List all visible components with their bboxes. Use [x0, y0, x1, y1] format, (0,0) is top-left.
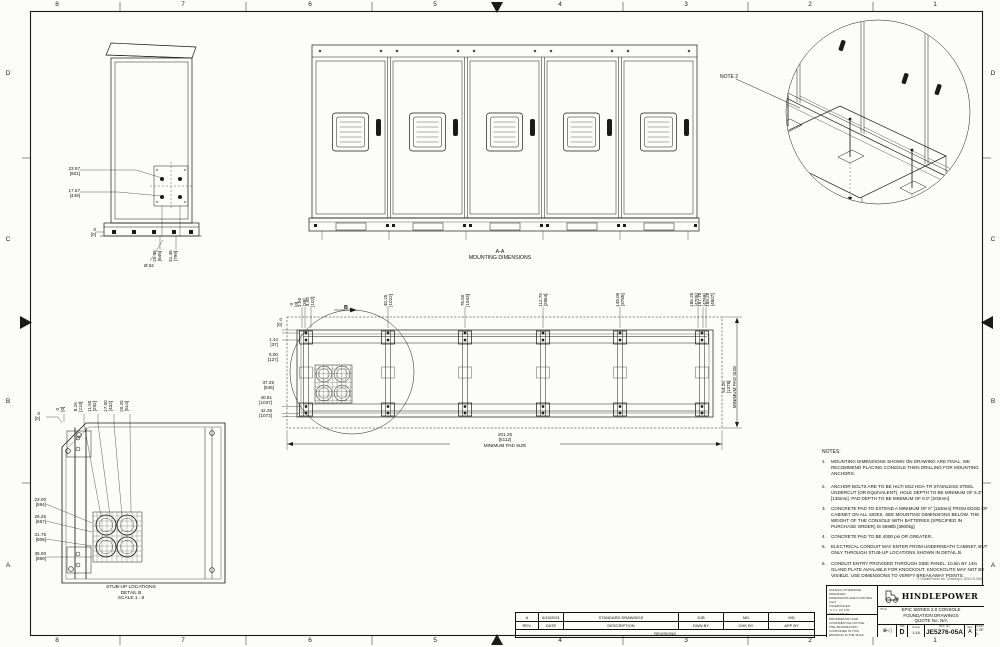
scale-cell: SCALE 1:16 — [908, 625, 925, 637]
plan-view-title: A-A MOUNTING DIMENSIONS — [420, 249, 580, 261]
sheet-size: D — [899, 629, 904, 636]
zone-col-top: 7 — [176, 1, 190, 8]
detail-top-dim: 17.00 [432] — [103, 400, 114, 412]
rev-header: DESCRIPTION — [564, 622, 679, 630]
zone-col-bottom: 2 — [803, 637, 817, 644]
side-dim-depth-2: 31.46 [799] — [168, 250, 179, 262]
door-handles — [376, 119, 689, 136]
detail-b-view — [46, 414, 225, 583]
sheet-number-cell: SHEET 1 OF 1 — [976, 625, 984, 637]
detail-stub-up-knockouts — [93, 512, 142, 562]
plan-detail-b-flag: B — [340, 305, 352, 311]
title-label: TITLE: — [880, 608, 888, 611]
plan-bottom-dim-pad-length: 201.25 [5112] MINIMUM PAD SIZE — [455, 432, 555, 448]
zone-col-top: 3 — [679, 1, 693, 8]
note-item: 2.ANCHOR BOLTS ARE TO BE HILTI M12 HDA-T… — [822, 484, 988, 502]
zone-col-bottom: 5 — [428, 637, 442, 644]
rev-header: DWN BY — [679, 622, 724, 630]
zone-col-bottom: 1 — [928, 637, 942, 644]
rev-header: APP BY — [769, 622, 814, 630]
detail-left-dim: 26.25 [667] — [20, 514, 46, 525]
plan-stub-up-knockouts — [315, 365, 352, 403]
door-vent-grilles — [333, 113, 677, 151]
rev-cell: A — [516, 613, 539, 622]
anchor-bolt-pattern — [150, 162, 192, 210]
rev-cell: MD — [724, 613, 769, 622]
note-item: 4.CONCRETE PAD TO BE 4000 psi OR GREATER… — [822, 534, 988, 540]
zone-row-right: A — [986, 562, 1000, 569]
proprietary-note: PROPRIETARY AND CONFIDENTIAL NOTICE: THE… — [827, 615, 877, 637]
iso-anchor-bolts — [776, 87, 926, 234]
iso-note-2-label: NOTE 2 — [712, 75, 746, 81]
sheet-number: 1 OF 1 — [976, 628, 984, 636]
note-item: 3.CONCRETE PAD TO EXTEND A MINIMUM OF 6"… — [822, 506, 988, 530]
zone-row-left: A — [1, 562, 15, 569]
detail-left-dim: 23.00 [584] — [20, 497, 46, 508]
company-logo: HINDLEPOWER — [878, 586, 984, 607]
plan-left-dim: 42.25 [1073] — [246, 408, 272, 419]
zone-col-top: 1 — [928, 1, 942, 8]
detail-top-dim: 20.25 [514] — [119, 400, 130, 412]
drawing-sheet: 8 7 6 5 4 3 2 1 8 7 6 5 4 3 2 1 D C B A … — [0, 0, 1000, 647]
zone-col-bottom: 6 — [303, 637, 317, 644]
title-block-bottom-row: ⊕◁ SIZE D SCALE 1:16 DWG. NO. JE5276-05A… — [878, 625, 984, 637]
detail-b-title: STUB-UP LOCATIONS DETAIL B SCALE 1 : 8 — [76, 585, 186, 602]
drawing-number: JE5276-05A — [926, 629, 963, 636]
rev-cell: MD — [769, 613, 814, 622]
rev-header: REV. — [516, 622, 539, 630]
note-item: 5.ELECTRICAL CONDUIT MAY ENTER FROM UNDE… — [822, 544, 988, 556]
plan-left-dim: 0 [0] — [256, 317, 282, 328]
note-item: 1.MOUNTING DIMENSIONS SHOWN ON DRAWING A… — [822, 459, 988, 477]
rev-cell: SJB — [679, 613, 724, 622]
sheet-size-cell: SIZE D — [897, 625, 908, 637]
projection-symbol: ⊕◁ — [878, 625, 897, 637]
note-item: 6.CONDUIT ENTRY PROVIDED THROUGH SIDE PA… — [822, 561, 988, 579]
zone-col-top: 8 — [50, 1, 64, 8]
tractor-logo-icon — [884, 590, 900, 603]
detail-left-dim: 31.75 [806] — [20, 532, 46, 543]
rev-cell: STANDARD DRAWINGS — [564, 613, 679, 622]
zone-row-right: D — [986, 70, 1000, 77]
front-elevation-view — [309, 45, 699, 240]
revision-table: A 6/15/2021 STANDARD DRAWINGS SJB MD MD … — [515, 612, 815, 638]
channel-end-pads — [300, 331, 709, 416]
drawing-title-line3: QUOTE No. N/A — [914, 618, 947, 624]
tolerance-note: UNLESS OTHERWISE SPECIFIED: DIMENSIONS A… — [827, 586, 877, 615]
zone-row-left: B — [1, 398, 15, 405]
zone-col-bottom: 8 — [50, 637, 64, 644]
side-dim-zero: 0 [0] — [82, 227, 96, 238]
anchor-bolt-dots — [305, 332, 703, 414]
zone-col-top: 6 — [303, 1, 317, 8]
plan-left-dim: 37.25 [946] — [248, 380, 274, 391]
side-dim-depth-1: 25.45 [646] — [152, 250, 163, 262]
detail-top-dim: 0 [0] — [55, 407, 66, 412]
plan-left-dim: 5.00 [127] — [252, 352, 278, 363]
detail-top-dim: 8.25 [210] — [73, 402, 84, 412]
zone-col-top: 2 — [803, 1, 817, 8]
title-block-notes-column: UNLESS OTHERWISE SPECIFIED: DIMENSIONS A… — [827, 586, 878, 637]
detail-top-dim: 11.50 [292] — [87, 401, 98, 412]
plan-top-dim: 76.50 [1943] — [460, 294, 471, 307]
copyright-note: © HindlePower Inc. Drawing # JE5276-05A — [838, 577, 982, 581]
zone-row-right: B — [986, 398, 1000, 405]
zone-col-top: 5 — [428, 1, 442, 8]
plan-top-dim: 189.25 [4807] — [705, 293, 716, 307]
company-name: HINDLEPOWER — [902, 591, 978, 601]
side-dim-bolt-top: 23.67 [601] — [56, 166, 80, 177]
zone-col-bottom: 4 — [553, 637, 567, 644]
plan-left-dim: 1.44 [37] — [252, 337, 278, 348]
side-elevation-view — [80, 43, 202, 261]
zone-row-left: D — [1, 70, 15, 77]
drawing-title: TITLE: EPIC SERIES 2.0 CONSOLE FOUNDATIO… — [878, 607, 984, 625]
panel-screws — [319, 50, 690, 52]
plan-right-dim-pad-depth: 54.25 [1378] MINIMUM PAD SIZE — [721, 366, 737, 409]
plan-top-dim: 4.00 [102] — [305, 297, 316, 307]
zone-col-top: 4 — [553, 1, 567, 8]
title-block-main-column: HINDLEPOWER TITLE: EPIC SERIES 2.0 CONSO… — [878, 586, 984, 637]
revisions-caption: REVISIONS — [516, 630, 814, 637]
plan-left-dim: 40.81 [1037] — [246, 395, 272, 406]
zone-col-bottom: 3 — [679, 637, 693, 644]
plan-top-dim: 149.00 [3785] — [615, 293, 626, 307]
notes-block: NOTES: 1.MOUNTING DIMENSIONS SHOWN ON DR… — [822, 449, 988, 583]
drawing-number-cell: DWG. NO. JE5276-05A — [925, 625, 965, 637]
detail-left-zero: 0 [0] — [24, 411, 40, 422]
rev-header: CHK BY — [724, 622, 769, 630]
detail-left-dim: 35.00 [889] — [20, 551, 46, 562]
iso-door-handles — [838, 40, 942, 96]
notes-heading: NOTES: — [822, 449, 988, 455]
rev-cell: 6/15/2021 — [539, 613, 564, 622]
side-dim-hole-dia: Ø.52 — [138, 263, 160, 268]
zone-col-bottom: 7 — [176, 637, 190, 644]
plan-top-dim: 112.75 [2864] — [538, 293, 549, 307]
iso-anchor-detail-view — [736, 14, 970, 266]
zone-row-right: C — [986, 236, 1000, 243]
rev-header: DATE — [539, 622, 564, 630]
side-dim-bolt-bottom: 17.67 [449] — [56, 188, 80, 199]
plan-view-aa — [282, 307, 742, 450]
revision-cell: REV A — [965, 625, 976, 637]
title-block: UNLESS OTHERWISE SPECIFIED: DIMENSIONS A… — [826, 585, 984, 637]
zone-row-left: C — [1, 236, 15, 243]
scale-value: 1:16 — [912, 630, 920, 635]
plan-top-dim: 40.25 [1022] — [383, 294, 394, 307]
revision-value: A — [968, 629, 972, 635]
